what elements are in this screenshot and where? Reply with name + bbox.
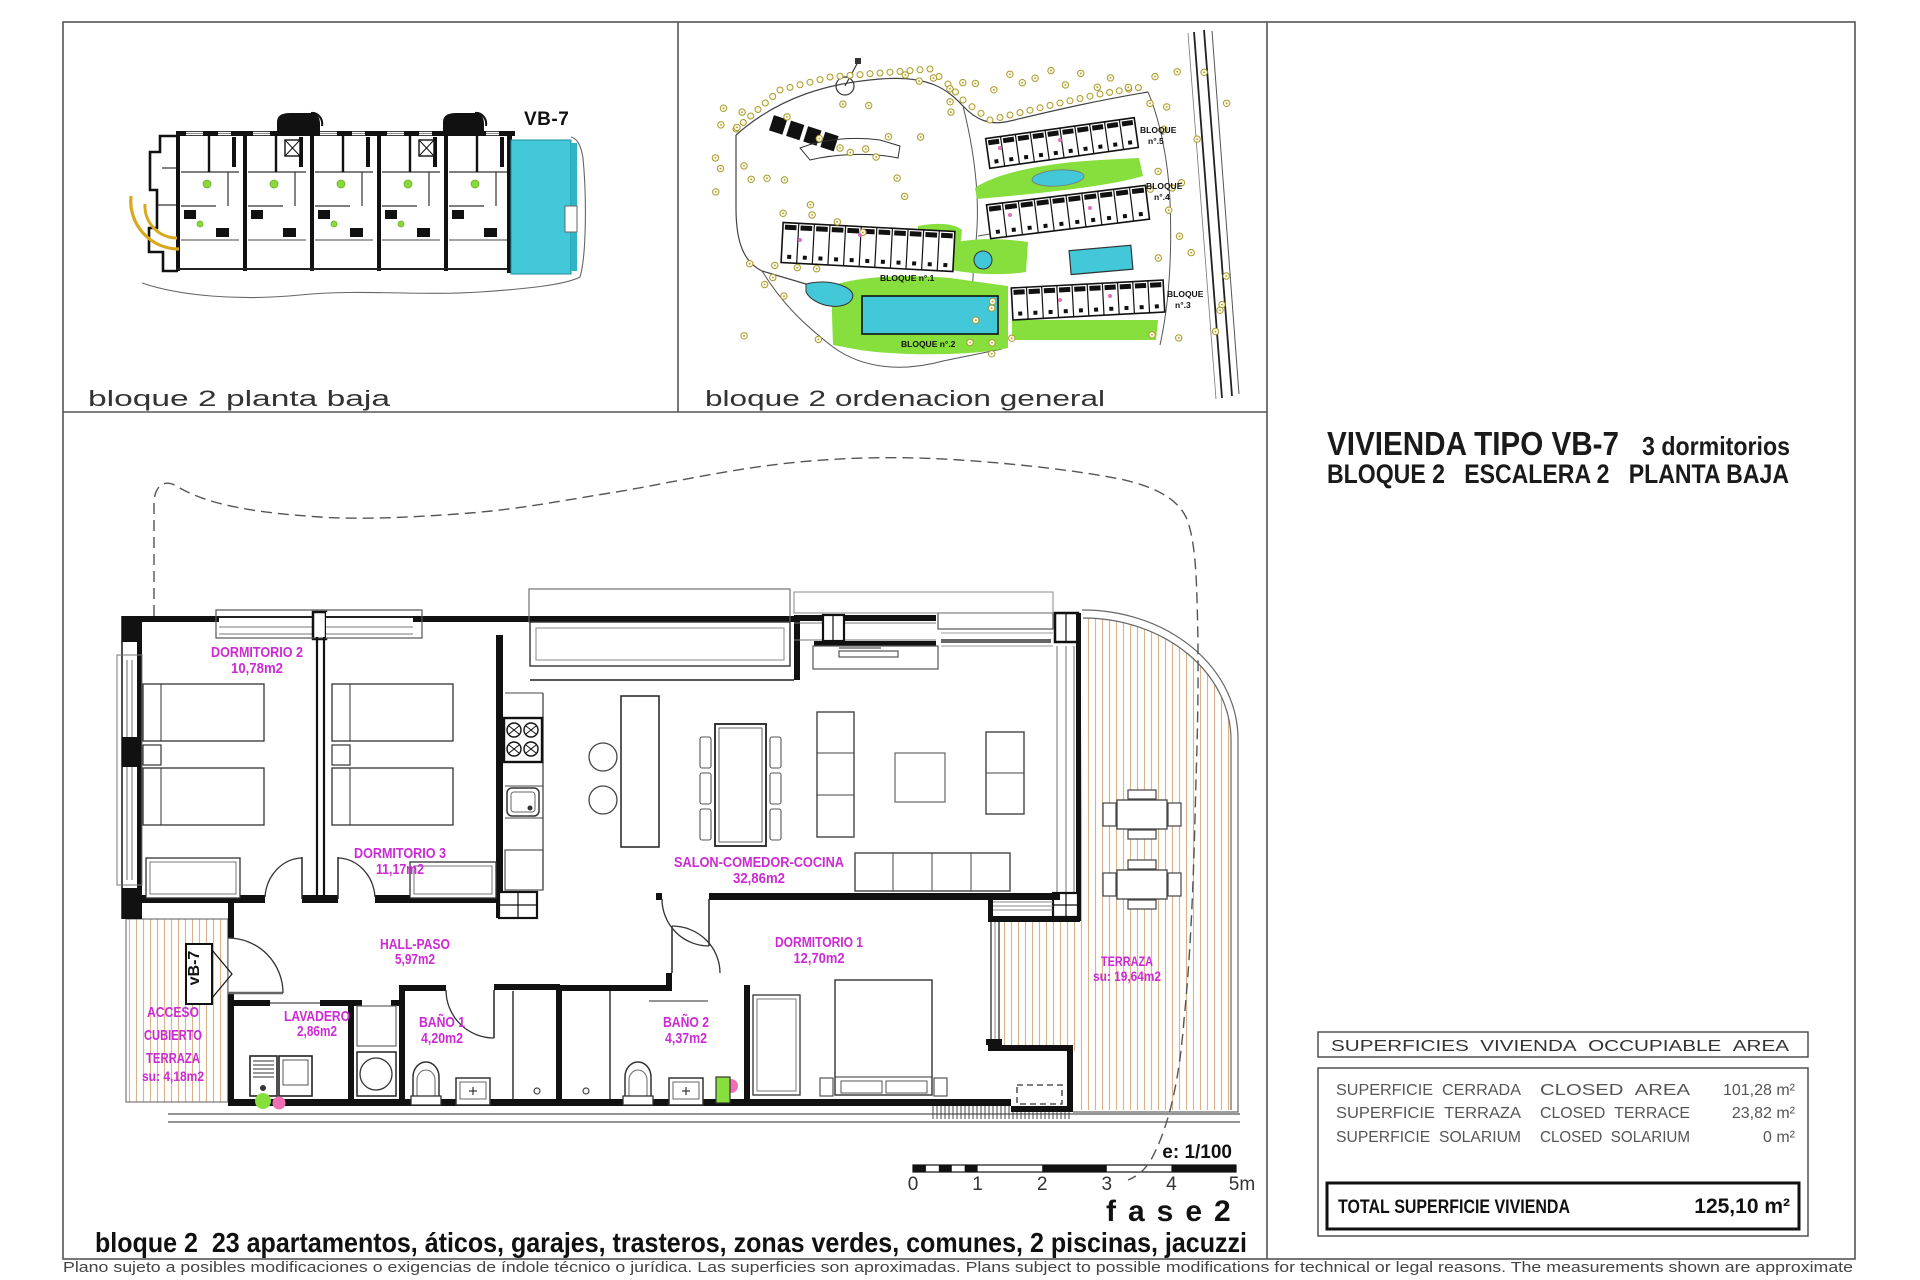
svg-text:n°.4: n°.4	[1154, 192, 1170, 202]
svg-text:SUPERFICIE SOLARIUM: SUPERFICIE SOLARIUM	[1336, 1129, 1521, 1146]
svg-text:SALON-COMEDOR-COCINA: SALON-COMEDOR-COCINA	[674, 854, 844, 871]
svg-text:0: 0	[908, 1174, 919, 1195]
svg-text:0 m²: 0 m²	[1763, 1129, 1796, 1146]
svg-text:fase2: fase2	[1106, 1195, 1243, 1228]
svg-text:BLOQUE n°.2: BLOQUE n°.2	[901, 339, 956, 349]
svg-text:n°.3: n°.3	[1175, 300, 1191, 310]
svg-text:CLOSED AREA: CLOSED AREA	[1540, 1082, 1690, 1099]
svg-text:10,78m2: 10,78m2	[231, 660, 283, 677]
svg-text:VB-7: VB-7	[524, 109, 569, 130]
svg-text:BLOQUE: BLOQUE	[1167, 289, 1204, 299]
svg-text:Plano sujeto a posibles modifi: Plano sujeto a posibles modificaciones o…	[63, 1260, 1853, 1276]
svg-text:su: 4,18m2: su: 4,18m2	[142, 1068, 204, 1084]
svg-text:4,20m2: 4,20m2	[421, 1030, 463, 1047]
svg-text:32,86m2: 32,86m2	[733, 870, 785, 887]
svg-text:n°.5: n°.5	[1148, 136, 1164, 146]
svg-text:2: 2	[1037, 1174, 1048, 1195]
svg-text:2,86m2: 2,86m2	[297, 1023, 337, 1040]
svg-text:e: 1/100: e: 1/100	[1162, 1142, 1232, 1163]
svg-text:TOTAL SUPERFICIE VIVIENDA: TOTAL SUPERFICIE VIVIENDA	[1338, 1197, 1570, 1218]
svg-text:VIVIENDA TIPO VB-7: VIVIENDA TIPO VB-7	[1327, 425, 1619, 462]
svg-text:BLOQUE: BLOQUE	[1140, 125, 1177, 135]
svg-text:BLOQUE: BLOQUE	[1146, 181, 1183, 191]
svg-text:TERRAZA: TERRAZA	[1101, 953, 1153, 969]
svg-text:BAÑO 2: BAÑO 2	[663, 1013, 709, 1031]
svg-text:11,17m2: 11,17m2	[376, 861, 424, 878]
svg-text:BAÑO 1: BAÑO 1	[419, 1013, 465, 1031]
svg-text:TERRAZA: TERRAZA	[146, 1050, 200, 1067]
svg-text:CLOSED SOLARIUM: CLOSED SOLARIUM	[1540, 1129, 1690, 1146]
svg-text:23,82 m²: 23,82 m²	[1732, 1105, 1796, 1122]
svg-text:12,70m2: 12,70m2	[794, 950, 845, 967]
svg-text:101,28 m²: 101,28 m²	[1723, 1082, 1796, 1099]
svg-text:BLOQUE 2 ESCALERA 2 PLANTA: BLOQUE 2 ESCALERA 2 PLANTA BAJA	[1327, 459, 1789, 489]
svg-text:5m: 5m	[1229, 1174, 1255, 1195]
svg-text:SUPERFICIES VIVIENDA OCCUPIA: SUPERFICIES VIVIENDA OCCUPIABLE AREA	[1331, 1038, 1790, 1055]
svg-text:su: 19,64m2: su: 19,64m2	[1093, 968, 1161, 984]
svg-text:5,97m2: 5,97m2	[395, 951, 435, 968]
svg-text:SUPERFICIE TERRAZA: SUPERFICIE TERRAZA	[1336, 1105, 1521, 1122]
svg-text:1: 1	[972, 1174, 983, 1195]
svg-text:bloque 2 planta baja: bloque 2 planta baja	[88, 386, 391, 411]
svg-text:vB-7: vB-7	[186, 951, 203, 986]
svg-text:SUPERFICIE CERRADA: SUPERFICIE CERRADA	[1336, 1082, 1521, 1099]
svg-text:125,10 m²: 125,10 m²	[1694, 1195, 1790, 1218]
svg-text:3 dormitorios: 3 dormitorios	[1642, 431, 1790, 461]
svg-text:CUBIERTO: CUBIERTO	[144, 1027, 202, 1044]
svg-text:DORMITORIO 1: DORMITORIO 1	[775, 934, 863, 951]
svg-text:ACCESO: ACCESO	[147, 1004, 199, 1021]
svg-text:4,37m2: 4,37m2	[665, 1030, 707, 1047]
svg-text:bloque 2 23 apartamentos, áti: bloque 2 23 apartamentos, áticos, garaje…	[95, 1227, 1247, 1258]
svg-text:CLOSED TERRACE: CLOSED TERRACE	[1540, 1105, 1690, 1122]
svg-text:DORMITORIO 3: DORMITORIO 3	[354, 845, 446, 862]
svg-text:DORMITORIO 2: DORMITORIO 2	[211, 644, 303, 661]
svg-text:3: 3	[1102, 1174, 1113, 1195]
svg-text:BLOQUE n°.1: BLOQUE n°.1	[880, 273, 935, 283]
svg-text:bloque 2 ordenacion general: bloque 2 ordenacion general	[705, 386, 1105, 411]
svg-text:4: 4	[1166, 1174, 1177, 1195]
